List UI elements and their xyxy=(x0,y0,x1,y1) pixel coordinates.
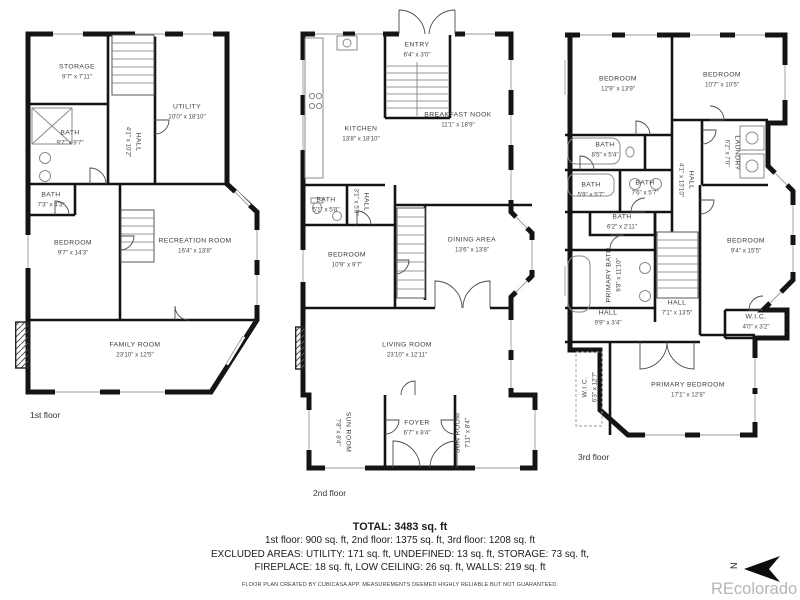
room-name: HALL xyxy=(361,188,371,215)
room-label: BATH9'7" x 9'7" xyxy=(56,128,83,147)
room-name: W.I.C. xyxy=(742,312,769,322)
room-dims: 11'1" x 18'9" xyxy=(424,120,491,129)
room-name: FOYER xyxy=(403,418,430,428)
room-dims: 9'8" x 11'10" xyxy=(614,247,623,302)
room-label: BATH7'3" x 4'3" xyxy=(37,190,64,209)
room-dims: 6'7" x 8'4" xyxy=(403,428,430,437)
room-dims: 7'8" x 8'4" xyxy=(333,412,342,453)
disclaimer: FLOOR PLAN CREATED BY CUBICASA APP. MEAS… xyxy=(0,582,800,588)
room-dims: 9'7" x 14'3" xyxy=(54,248,92,257)
total-area: TOTAL: 3483 sq. ft xyxy=(0,520,800,534)
room-dims: 5'9" x 5'7" xyxy=(577,190,604,199)
room-dims: 4'0" x 3'2" xyxy=(742,322,769,331)
excluded-areas-line2: FIREPLACE: 18 sq. ft, LOW CEILING: 26 sq… xyxy=(0,561,800,575)
room-name: HALL xyxy=(662,298,693,308)
room-name: BEDROOM xyxy=(727,236,765,246)
room-label: BATH6'2" x 2'11" xyxy=(607,212,637,231)
room-name: UTILITY xyxy=(168,102,205,112)
room-label: FAMILY ROOM23'10" x 12'5" xyxy=(110,340,161,359)
floor-caption-2: 2nd floor xyxy=(313,488,346,498)
room-dims: 3'1" x 5'8" xyxy=(351,188,360,215)
floor-caption-1: 1st floor xyxy=(30,410,60,420)
room-dims: 17'1" x 12'8" xyxy=(651,390,725,399)
room-label: STORAGE9'7" x 7'11" xyxy=(59,62,95,81)
room-dims: 10'7" x 10'5" xyxy=(703,80,741,89)
room-dims: 13'6" x 13'8" xyxy=(448,245,496,254)
room-name: HALL xyxy=(594,308,621,318)
room-name: PRIMARY BEDROOM xyxy=(651,380,725,390)
room-dims: 6'2" x 2'11" xyxy=(607,222,637,231)
room-label: BEDROOM10'7" x 10'5" xyxy=(703,70,741,89)
room-name: HALL xyxy=(686,163,696,197)
room-label: LAUNDRY6'2" x 7'0" xyxy=(722,135,741,170)
room-name: BATH xyxy=(56,128,83,138)
floor-1-labels: STORAGE9'7" x 7'11"UTILITY10'0" x 18'10"… xyxy=(15,20,265,435)
room-name: SUN ROOM xyxy=(343,412,353,453)
room-dims: 9'7" x 7'11" xyxy=(59,72,95,81)
room-dims: 7'1" x 13'5" xyxy=(662,308,693,317)
room-name: HALL xyxy=(133,127,143,158)
room-label: HALL4'1" x 10'2" xyxy=(123,127,142,158)
room-label: BATH7'6" x 5'7" xyxy=(631,178,658,197)
floor-plan-1st: STORAGE9'7" x 7'11"UTILITY10'0" x 18'10"… xyxy=(15,20,265,435)
floor-caption-3: 3rd floor xyxy=(578,452,609,462)
excluded-areas-line1: EXCLUDED AREAS: UTILITY: 171 sq. ft, UND… xyxy=(0,548,800,562)
room-label: BEDROOM10'9" x 9'7" xyxy=(328,250,366,269)
room-name: BEDROOM xyxy=(703,70,741,80)
room-dims: 8'5" x 5'4" xyxy=(591,150,618,159)
room-label: FOYER6'7" x 8'4" xyxy=(403,418,430,437)
room-name: STORAGE xyxy=(59,62,95,72)
room-label: BEDROOM9'4" x 15'5" xyxy=(727,236,765,255)
room-dims: 4'1" x 10'2" xyxy=(123,127,132,158)
floor-2-labels: ENTRY6'4" x 3'0"KITCHEN13'8" x 18'10"BRE… xyxy=(295,20,540,505)
room-name: FAMILY ROOM xyxy=(110,340,161,350)
room-name: BEDROOM xyxy=(328,250,366,260)
floor-plan-3rd: BEDROOM12'9" x 13'9"BEDROOM10'7" x 10'5"… xyxy=(550,20,800,475)
room-dims: 10'9" x 9'7" xyxy=(328,260,366,269)
room-name: RECREATION ROOM xyxy=(158,236,231,246)
room-name: LIVING ROOM xyxy=(382,340,432,350)
room-dims: 23'10" x 12'11" xyxy=(382,350,432,359)
floor-3-labels: BEDROOM12'9" x 13'9"BEDROOM10'7" x 10'5"… xyxy=(550,20,800,475)
room-dims: 7'3" x 4'3" xyxy=(37,200,64,209)
watermark: REcolorado xyxy=(711,580,797,599)
room-dims: 6'3" x 12'7" xyxy=(590,372,599,403)
room-dims: 10'0" x 18'10" xyxy=(168,112,205,121)
room-dims: 7'11" x 8'4" xyxy=(463,413,472,454)
floor-areas: 1st floor: 900 sq. ft, 2nd floor: 1375 s… xyxy=(0,534,800,548)
room-name: BEDROOM xyxy=(599,74,637,84)
room-name: SUN ROOM xyxy=(453,413,463,454)
room-name: BREAKFAST NOOK xyxy=(424,110,491,120)
room-label: RECREATION ROOM16'4" x 13'8" xyxy=(158,236,231,255)
room-label: LIVING ROOM23'10" x 12'11" xyxy=(382,340,432,359)
room-label: UTILITY10'0" x 18'10" xyxy=(168,102,205,121)
room-dims: 6'4" x 3'0" xyxy=(403,50,430,59)
area-summary: TOTAL: 3483 sq. ft 1st floor: 900 sq. ft… xyxy=(0,520,800,588)
room-name: BATH xyxy=(577,180,604,190)
room-name: BATH xyxy=(312,195,339,205)
room-label: HALL3'1" x 5'8" xyxy=(351,188,370,215)
room-name: BATH xyxy=(607,212,637,222)
room-name: LAUNDRY xyxy=(732,135,742,170)
room-label: DINING AREA13'6" x 13'8" xyxy=(448,235,496,254)
room-label: BATH8'5" x 5'4" xyxy=(591,140,618,159)
room-label: HALL9'9" x 3'4" xyxy=(594,308,621,327)
room-label: PRIMARY BEDROOM17'1" x 12'8" xyxy=(651,380,725,399)
room-dims: 4'1" x 13'10" xyxy=(676,163,685,197)
room-name: W.I.C. xyxy=(580,372,590,403)
room-dims: 7'6" x 5'7" xyxy=(631,188,658,197)
room-dims: 9'4" x 15'5" xyxy=(727,246,765,255)
room-dims: 6'2" x 7'0" xyxy=(722,135,731,170)
room-label: BATH5'9" x 5'7" xyxy=(577,180,604,199)
room-name: PRIMARY BATH xyxy=(604,247,614,302)
room-name: DINING AREA xyxy=(448,235,496,245)
room-dims: 5'1" x 5'8" xyxy=(312,205,339,214)
room-label: SUN ROOM7'11" x 8'4" xyxy=(453,413,472,454)
room-label: BATH5'1" x 5'8" xyxy=(312,195,339,214)
room-label: BREAKFAST NOOK11'1" x 18'9" xyxy=(424,110,491,129)
room-label: HALL7'1" x 13'5" xyxy=(662,298,693,317)
room-label: ENTRY6'4" x 3'0" xyxy=(403,40,430,59)
room-name: KITCHEN xyxy=(342,124,379,134)
room-name: ENTRY xyxy=(403,40,430,50)
floor-plan-2nd: ENTRY6'4" x 3'0"KITCHEN13'8" x 18'10"BRE… xyxy=(295,20,540,505)
room-dims: 23'10" x 12'5" xyxy=(110,350,161,359)
floor-plan-page: STORAGE9'7" x 7'11"UTILITY10'0" x 18'10"… xyxy=(0,0,800,600)
room-label: BEDROOM12'9" x 13'9" xyxy=(599,74,637,93)
room-label: BEDROOM9'7" x 14'3" xyxy=(54,238,92,257)
room-dims: 9'9" x 3'4" xyxy=(594,318,621,327)
compass-label: N xyxy=(729,563,739,570)
room-dims: 12'9" x 13'9" xyxy=(599,84,637,93)
room-label: PRIMARY BATH9'8" x 11'10" xyxy=(604,247,623,302)
room-label: HALL4'1" x 13'10" xyxy=(676,163,695,197)
room-dims: 9'7" x 9'7" xyxy=(56,138,83,147)
room-label: W.I.C.4'0" x 3'2" xyxy=(742,312,769,331)
room-name: BATH xyxy=(591,140,618,150)
room-dims: 13'8" x 18'10" xyxy=(342,134,379,143)
room-name: BATH xyxy=(631,178,658,188)
room-name: BEDROOM xyxy=(54,238,92,248)
room-label: SUN ROOM7'8" x 8'4" xyxy=(333,412,352,453)
room-name: BATH xyxy=(37,190,64,200)
room-label: KITCHEN13'8" x 18'10" xyxy=(342,124,379,143)
room-dims: 16'4" x 13'8" xyxy=(158,246,231,255)
room-label: W.I.C.6'3" x 12'7" xyxy=(580,372,599,403)
north-arrow-icon xyxy=(744,556,780,582)
